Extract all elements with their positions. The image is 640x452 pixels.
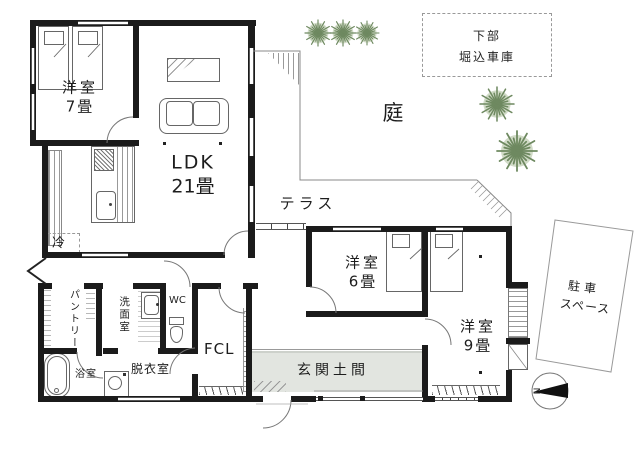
bay-window-line [28, 258, 46, 284]
entrance-label: 玄関土間 [297, 362, 369, 380]
tree-icon [305, 20, 331, 46]
compass-icon: N [532, 373, 568, 409]
compass-north-text: N [533, 388, 543, 395]
door-swing-arc [310, 287, 336, 313]
bedroom7-label: 洋室 7畳 [62, 78, 98, 116]
side-door-diagonal [509, 345, 527, 369]
room-name: 洋室 [345, 253, 381, 272]
bedroom9-label: 洋室 9畳 [460, 317, 496, 355]
washroom-label: 洗面室 [117, 296, 130, 334]
wc-label: WC [169, 295, 186, 308]
fcl-label: FCL [204, 340, 234, 359]
bathroom-label: 浴室 [75, 369, 97, 382]
bed-fold-marks [54, 44, 459, 259]
door-swing-arc [219, 287, 245, 313]
floor-plan: 冷 [0, 0, 640, 452]
tree-icon [330, 20, 356, 46]
garage-note-line2: 堀込車庫 [423, 48, 551, 65]
parking-area-outline [536, 220, 633, 372]
room-name: LDK [171, 151, 215, 175]
door-swing-arc [107, 117, 133, 143]
slope-edge-line [477, 180, 511, 226]
door-swing-arc [224, 231, 248, 255]
pantry-label: パントリー [66, 289, 79, 349]
bedroom6-label: 洋室 6畳 [345, 253, 381, 291]
room-name: 洋室 [460, 317, 496, 336]
room-size: 21畳 [171, 175, 215, 199]
room-size: 9畳 [460, 336, 496, 355]
terrace-label: テラス [280, 195, 337, 214]
room-size: 6畳 [345, 272, 381, 291]
garage-note-box: 下部 堀込車庫 [422, 13, 552, 77]
tree-icon [480, 87, 514, 121]
door-swing-arc [164, 261, 190, 287]
ldk-label: LDK 21畳 [171, 151, 215, 199]
tree-icon [355, 21, 379, 45]
dressing-label: 脱衣室 [131, 362, 170, 377]
door-swing-arc [170, 348, 195, 374]
door-swing-arc [425, 319, 451, 345]
room-name: 洋室 [62, 78, 98, 97]
tree-icon [497, 131, 537, 171]
door-swing-arcs [77, 117, 451, 428]
room-size: 7畳 [62, 97, 98, 116]
slope-hatch-marks [471, 181, 507, 217]
garage-note-line1: 下部 [423, 27, 551, 44]
garden-label: 庭 [383, 100, 404, 126]
